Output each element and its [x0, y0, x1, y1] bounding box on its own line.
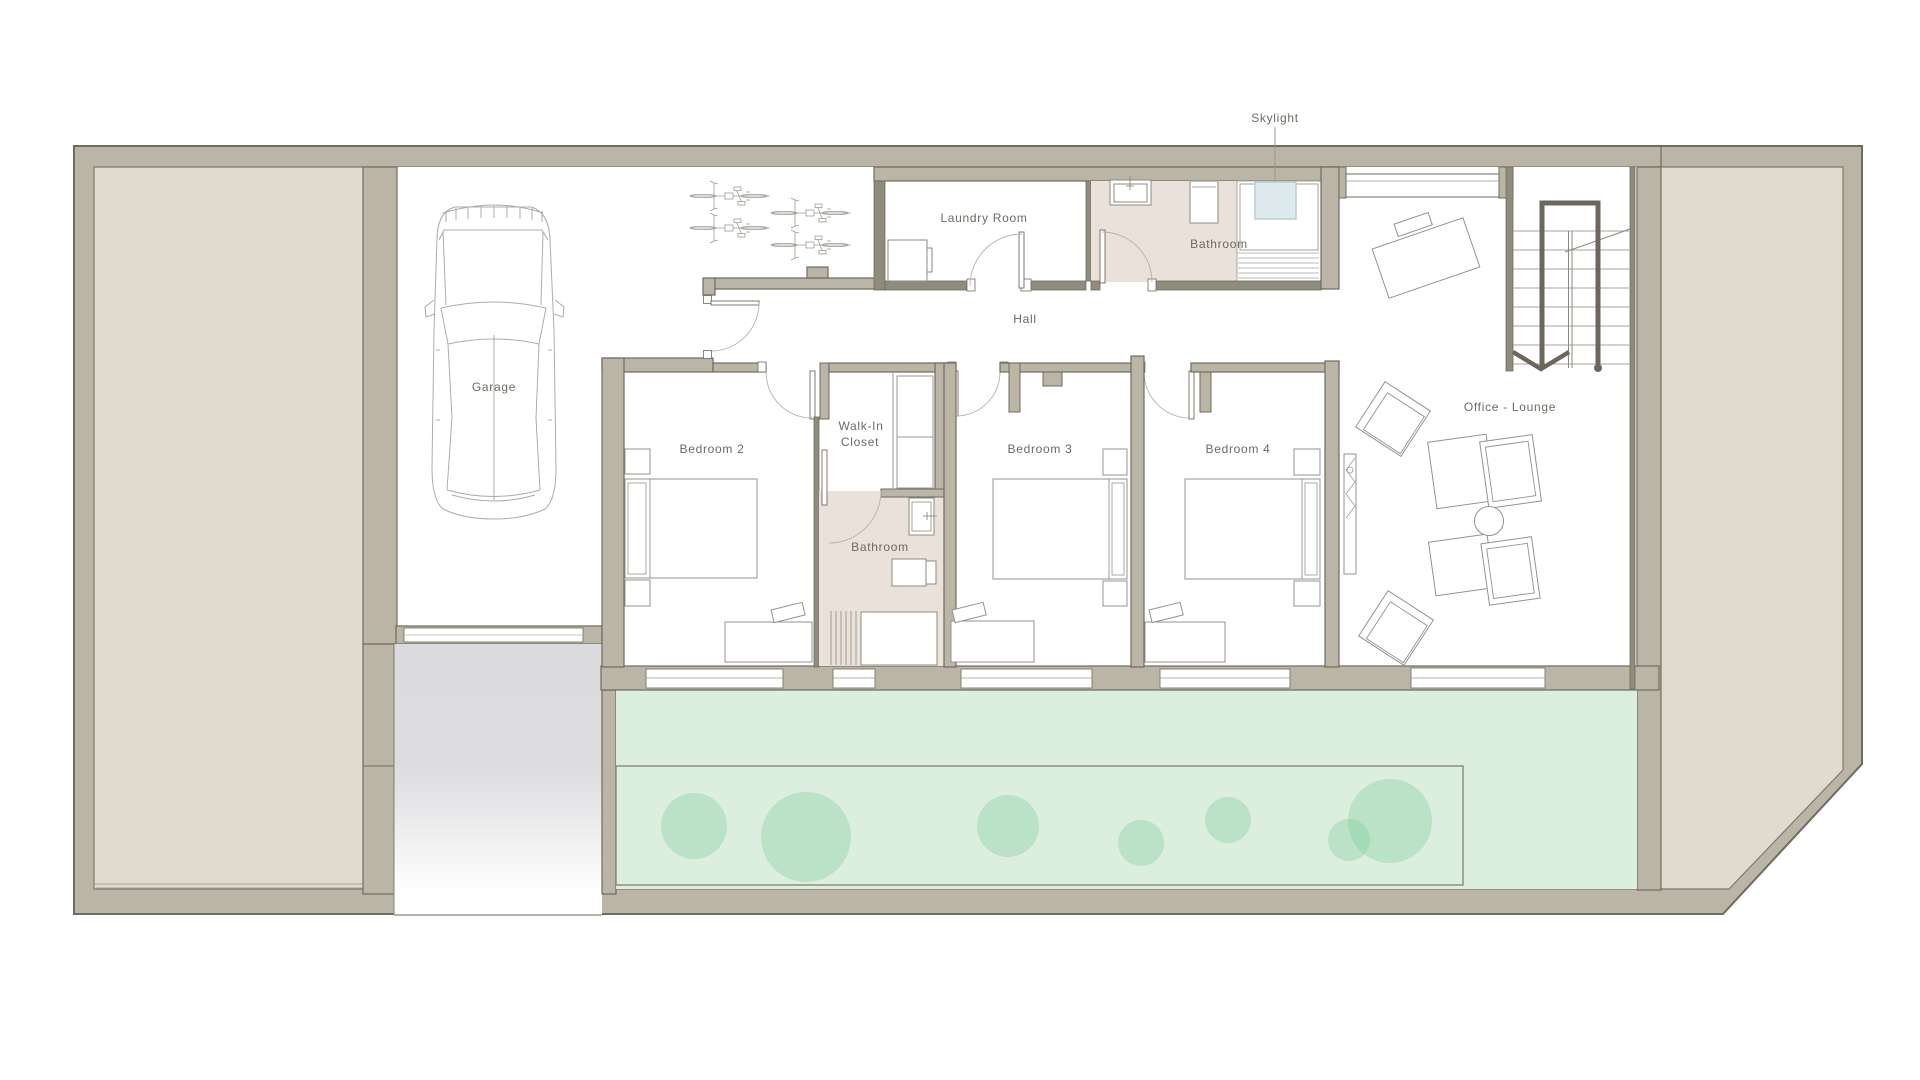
svg-text:Laundry Room: Laundry Room	[940, 211, 1027, 225]
svg-text:Skylight: Skylight	[1251, 111, 1299, 125]
svg-text:Walk-In: Walk-In	[838, 419, 883, 433]
svg-text:Garage: Garage	[472, 380, 516, 394]
svg-text:Bedroom 3: Bedroom 3	[1008, 442, 1073, 456]
svg-text:Bedroom 2: Bedroom 2	[680, 442, 745, 456]
svg-text:Hall: Hall	[1013, 312, 1036, 326]
svg-text:Closet: Closet	[841, 435, 879, 449]
svg-text:Bathroom: Bathroom	[1190, 237, 1248, 251]
svg-text:Bathroom: Bathroom	[851, 540, 909, 554]
svg-text:Bedroom 4: Bedroom 4	[1206, 442, 1271, 456]
svg-text:Office - Lounge: Office - Lounge	[1464, 400, 1556, 414]
